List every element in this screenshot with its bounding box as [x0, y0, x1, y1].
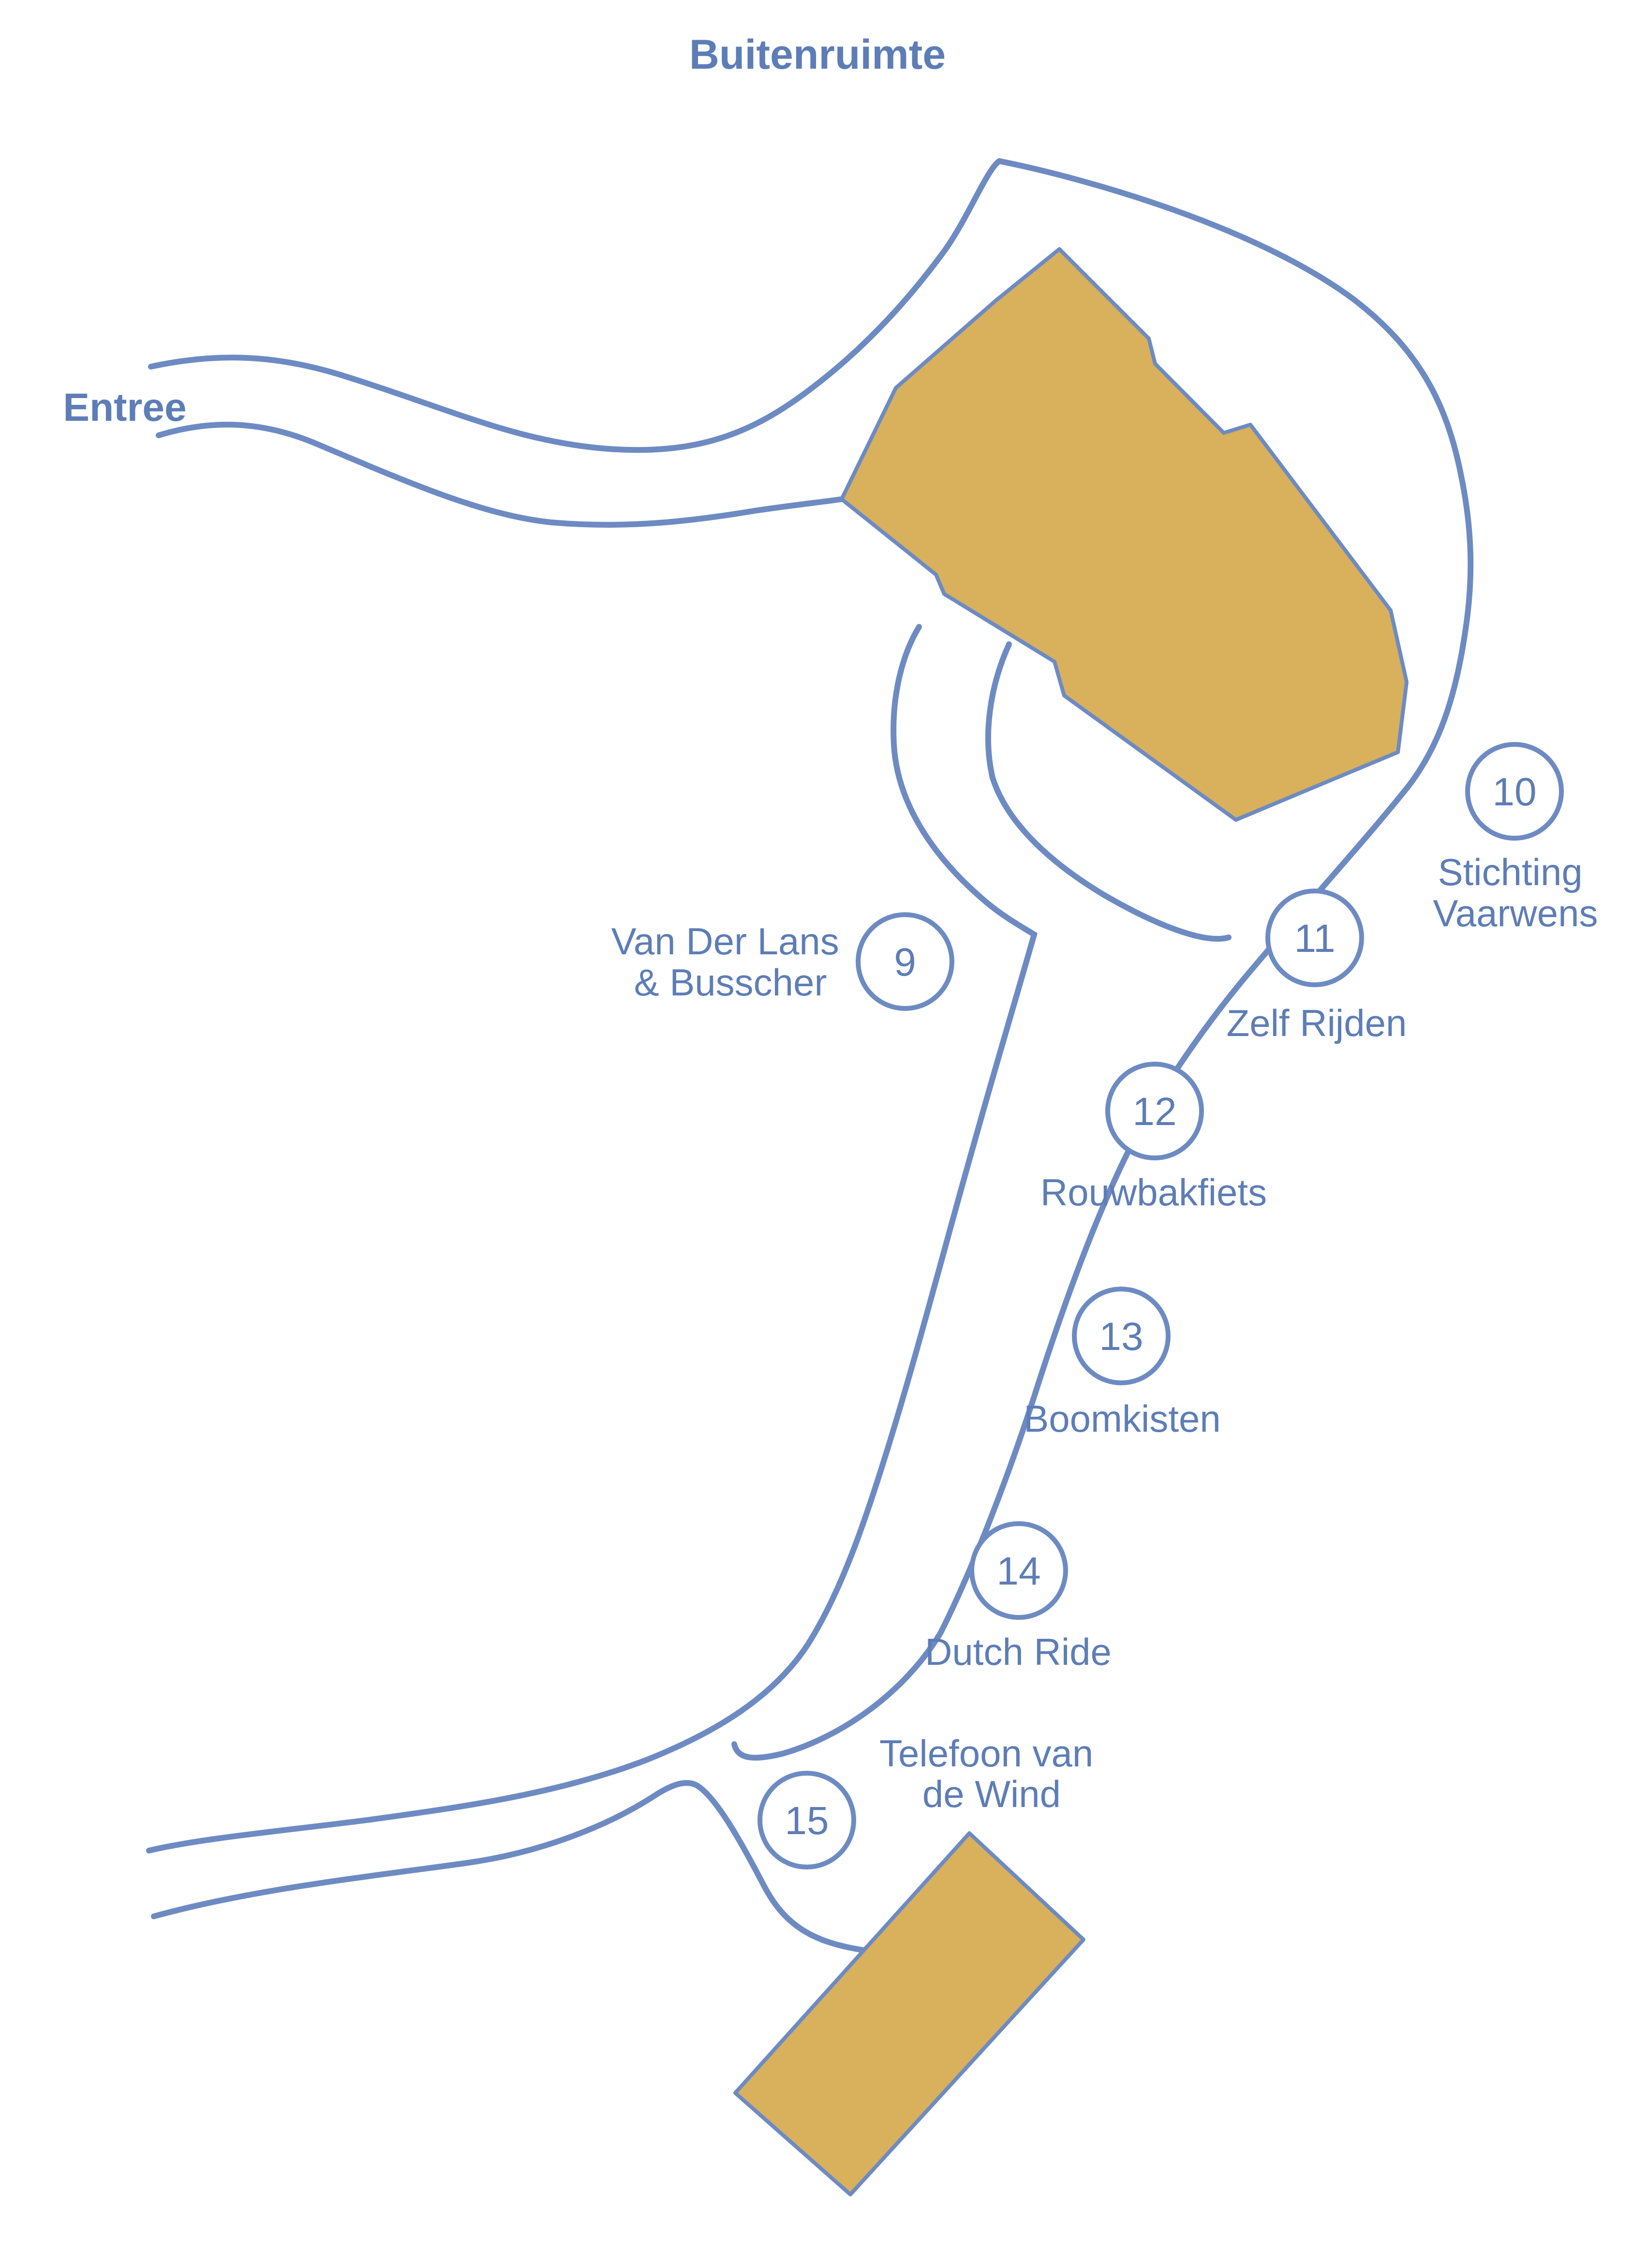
south-building — [735, 1833, 1084, 2194]
station-9-label: Van Der Lans & Busscher — [611, 920, 850, 1004]
station-15-number: 15 — [785, 1799, 829, 1843]
station-14: 14 Dutch Ride — [925, 1524, 1112, 1673]
station-13-label: Boomkisten — [1024, 1397, 1221, 1440]
map-canvas: Buitenruimte Entree 9 Van Der Lans & Bus… — [0, 0, 1633, 2268]
page-title: Buitenruimte — [689, 31, 946, 78]
main-building — [842, 249, 1407, 820]
station-9-number: 9 — [894, 940, 916, 984]
entree-road-lower-line — [159, 425, 842, 525]
station-13-number: 13 — [1099, 1315, 1143, 1359]
station-10: 10 Stichting Vaarwens — [1433, 744, 1598, 934]
station-11-label: Zelf Rijden — [1227, 1002, 1407, 1044]
station-12-number: 12 — [1132, 1090, 1176, 1134]
station-15-label: Telefoon van de Wind — [879, 1732, 1104, 1815]
roads — [149, 161, 1470, 1950]
buildings — [735, 249, 1407, 2194]
station-12-label: Rouwbakfiets — [1040, 1171, 1267, 1214]
entree-label: Entree — [63, 385, 186, 430]
buitenruimte-map: Buitenruimte Entree 9 Van Der Lans & Bus… — [0, 0, 1633, 2268]
station-14-number: 14 — [996, 1549, 1040, 1593]
inner-road-left-edge-line — [149, 627, 1034, 1851]
station-13: 13 Boomkisten — [1024, 1289, 1221, 1440]
southwest-road-lower-line — [154, 1783, 864, 1950]
station-12: 12 Rouwbakfiets — [1040, 1064, 1267, 1214]
station-10-number: 10 — [1492, 770, 1536, 814]
station-14-label: Dutch Ride — [925, 1631, 1112, 1673]
station-11-number: 11 — [1294, 917, 1335, 961]
station-10-label: Stichting Vaarwens — [1433, 851, 1598, 934]
station-15: 15 Telefoon van de Wind — [760, 1732, 1104, 1867]
station-9: 9 Van Der Lans & Busscher — [611, 915, 952, 1008]
